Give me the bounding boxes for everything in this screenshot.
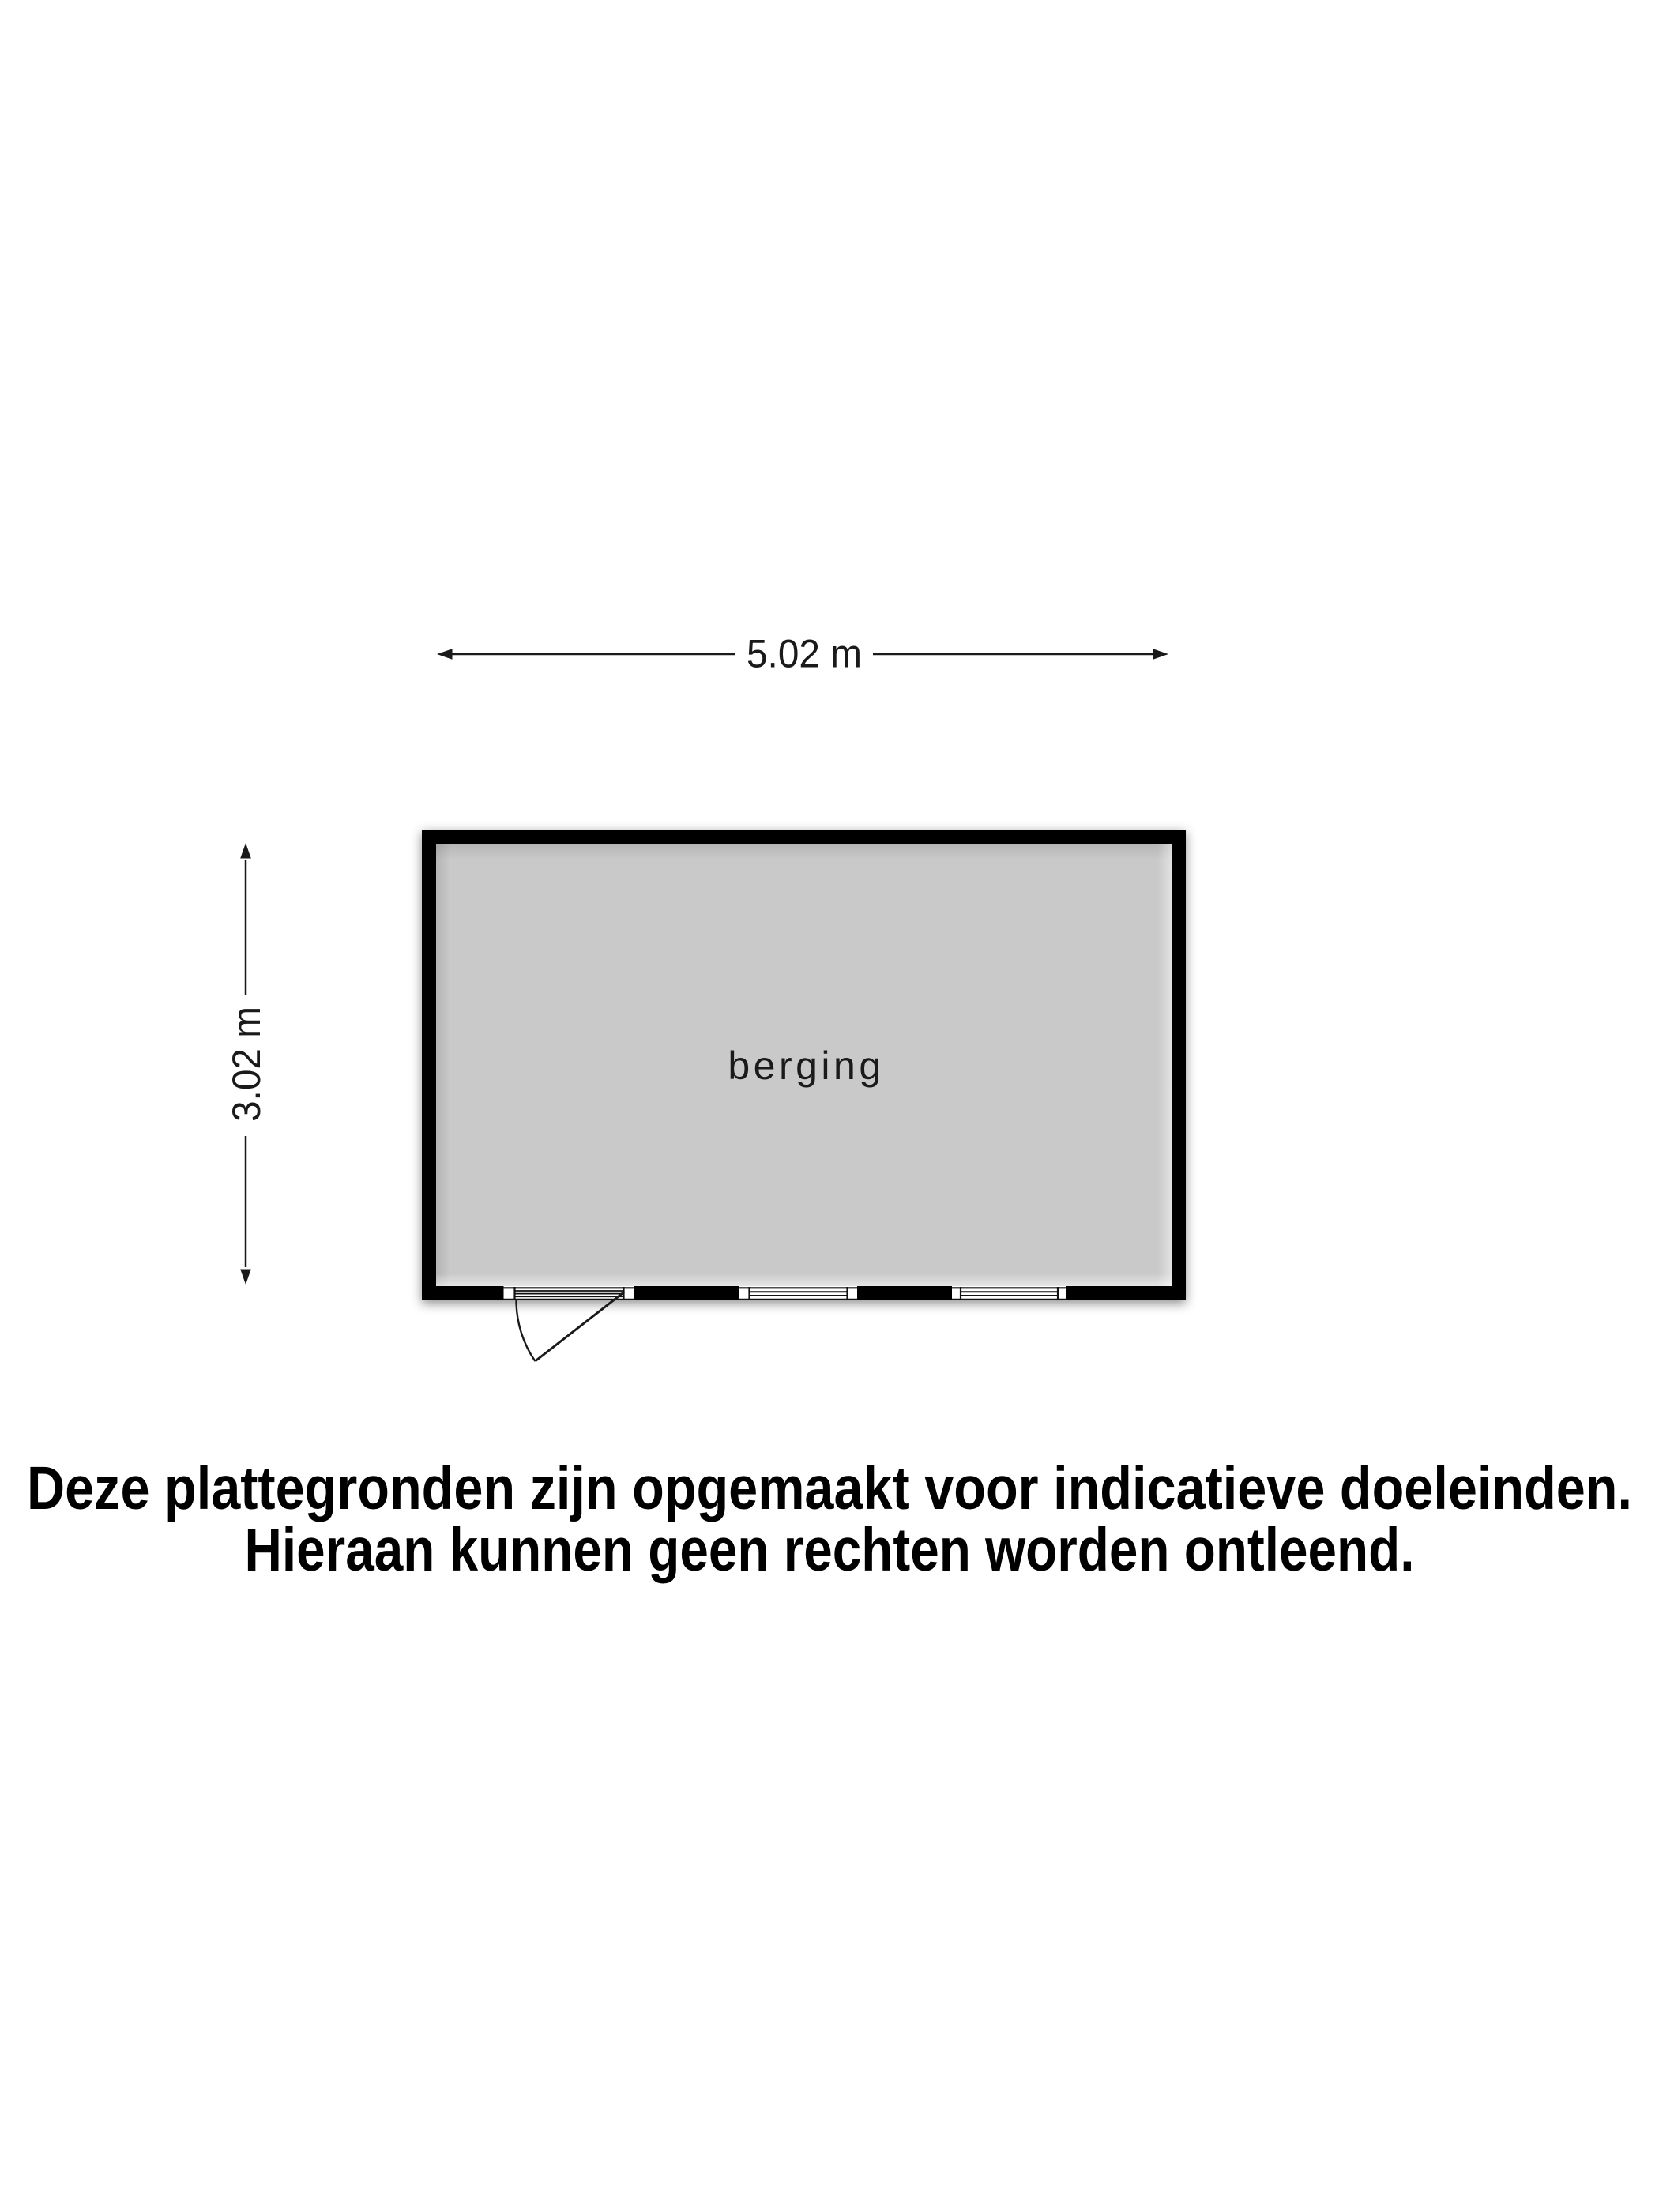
svg-text:3.02 m: 3.02 m bbox=[224, 1006, 269, 1122]
svg-text:5.02 m: 5.02 m bbox=[747, 632, 862, 676]
svg-text:Deze plattegronden zijn opgema: Deze plattegronden zijn opgemaakt voor i… bbox=[27, 1454, 1632, 1522]
svg-text:Hieraan kunnen geen rechten wo: Hieraan kunnen geen rechten worden ontle… bbox=[245, 1516, 1415, 1584]
svg-text:berging: berging bbox=[728, 1044, 884, 1088]
